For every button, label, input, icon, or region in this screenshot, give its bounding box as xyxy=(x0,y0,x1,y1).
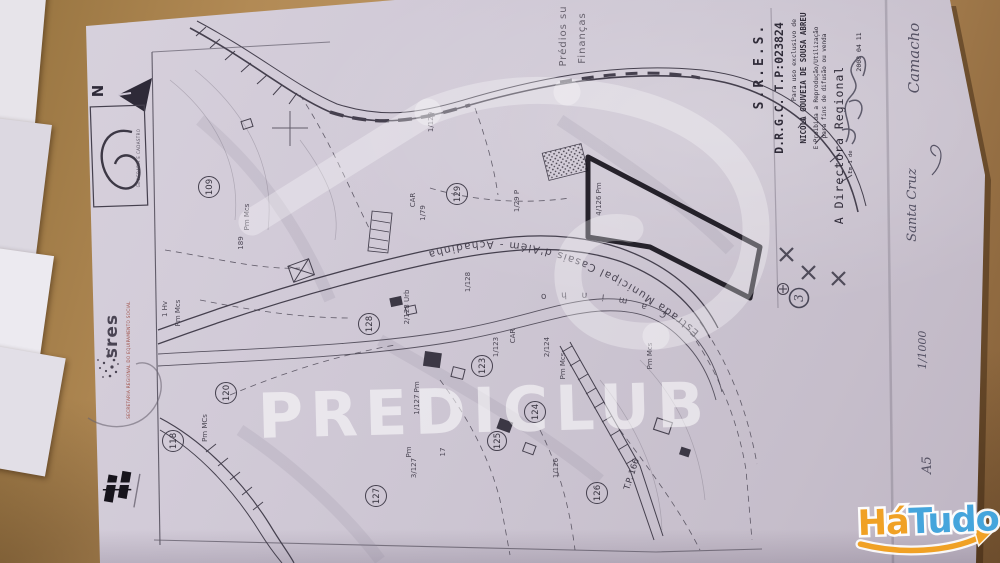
sres-wordmark: sres xyxy=(102,314,122,358)
legend-block: S.R.E.S. D.R.G.C. T.P:023824 Para uso ex… xyxy=(752,12,865,224)
svg-text:2/128 Urb: 2/128 Urb xyxy=(403,289,411,324)
prediclub-watermark-text: PREDICLUB xyxy=(257,368,712,453)
legend-date: 2008 04 11 xyxy=(855,32,863,71)
svg-text:Pm Mcs: Pm Mcs xyxy=(174,299,182,326)
legend-prohibition-2: para fins de difusão ou venda xyxy=(821,33,828,138)
regional-emblem-icon xyxy=(101,468,141,507)
svg-text:CAR: CAR xyxy=(509,329,517,344)
svg-text:189: 189 xyxy=(237,236,245,249)
hatudo-logo: HáTudo xyxy=(857,499,1000,552)
sres-tagline: SECRETARIA REGIONAL DO EQUIPAMENTO SOCIA… xyxy=(126,301,131,419)
legend-prohibition-1: E Proibida a Reprodução/Utilização xyxy=(813,26,820,149)
svg-text:Prédios su: Prédios su xyxy=(557,5,569,66)
svg-text:1 Hv: 1 Hv xyxy=(161,301,169,317)
svg-text:3/127: 3/127 xyxy=(410,458,418,478)
svg-text:120: 120 xyxy=(222,385,232,401)
margin-handwriting: Camacho Santa Cruz 1/1000 A5 xyxy=(905,23,941,475)
paper-crease xyxy=(886,0,893,563)
svg-text:1/29 P: 1/29 P xyxy=(513,190,521,212)
svg-text:1/79: 1/79 xyxy=(419,205,427,221)
north-label: N xyxy=(89,85,107,98)
handwriting-name: Camacho xyxy=(905,23,923,94)
svg-text:CAR: CAR xyxy=(409,193,417,208)
svg-text:118: 118 xyxy=(169,433,179,449)
hatudo-word-ha: Há xyxy=(857,502,909,544)
agency-caption: GEOGRAFIA E CADASTRO xyxy=(136,129,141,188)
handwriting-sheet: A5 xyxy=(920,456,935,475)
legend-date-note: Em 1 de xyxy=(848,150,854,173)
handwriting-scale: 1/1000 xyxy=(916,331,929,370)
agency-logo-box: GEOGRAFIA E CADASTRO xyxy=(90,105,147,207)
pen-x-marks xyxy=(780,248,845,285)
handwriting-flourish xyxy=(931,145,941,175)
legend-holder-name: NICOLA GOUVEIA DE SOUSA ABREU xyxy=(799,12,808,143)
svg-text:126: 126 xyxy=(593,485,603,501)
svg-text:123: 123 xyxy=(478,358,488,374)
financas-stamp: Prédios su Finanças xyxy=(557,5,588,66)
handwritten-circled-number: 3 xyxy=(790,289,809,308)
svg-text:128: 128 xyxy=(365,316,375,332)
plan-artwork: Estrada Municipal Casais d'Além - Achadi… xyxy=(0,0,1000,563)
hatudo-word-tudo: Tudo xyxy=(908,499,999,542)
legend-reference: D.R.G.C. T.P:023824 xyxy=(772,22,786,154)
svg-text:Pm MCs: Pm MCs xyxy=(201,414,209,442)
svg-text:HáTudo: HáTudo xyxy=(857,499,999,544)
agency-g-glyph xyxy=(102,131,140,189)
legend-signatory: A Directora Regional xyxy=(832,66,846,224)
photo-scene: Estrada Municipal Casais d'Além - Achadi… xyxy=(0,0,1000,563)
handwriting-place: Santa Cruz xyxy=(905,168,920,242)
svg-text:1/126: 1/126 xyxy=(552,457,560,478)
svg-text:17: 17 xyxy=(439,448,447,457)
legend-org: S.R.E.S. xyxy=(752,23,767,110)
legend-usage: Para uso exclusivo de xyxy=(790,19,798,101)
svg-text:2/124: 2/124 xyxy=(543,336,551,357)
svg-text:109: 109 xyxy=(205,179,215,195)
svg-text:4/126 Pm: 4/126 Pm xyxy=(595,182,603,216)
road-code-label: T.P. 166 xyxy=(622,457,642,492)
svg-text:129: 129 xyxy=(453,186,463,202)
svg-text:1/128: 1/128 xyxy=(464,272,472,292)
grid-cross xyxy=(272,111,308,146)
svg-text:1/123: 1/123 xyxy=(492,337,500,357)
sres-logo: sres SECRETARIA REGIONAL DO EQUIPAMENTO … xyxy=(88,301,161,427)
well-symbol xyxy=(778,284,789,295)
svg-text:Finanças: Finanças xyxy=(577,12,588,63)
svg-text:127: 127 xyxy=(372,488,382,504)
svg-text:3: 3 xyxy=(792,294,806,302)
sres-swoosh xyxy=(88,363,161,427)
